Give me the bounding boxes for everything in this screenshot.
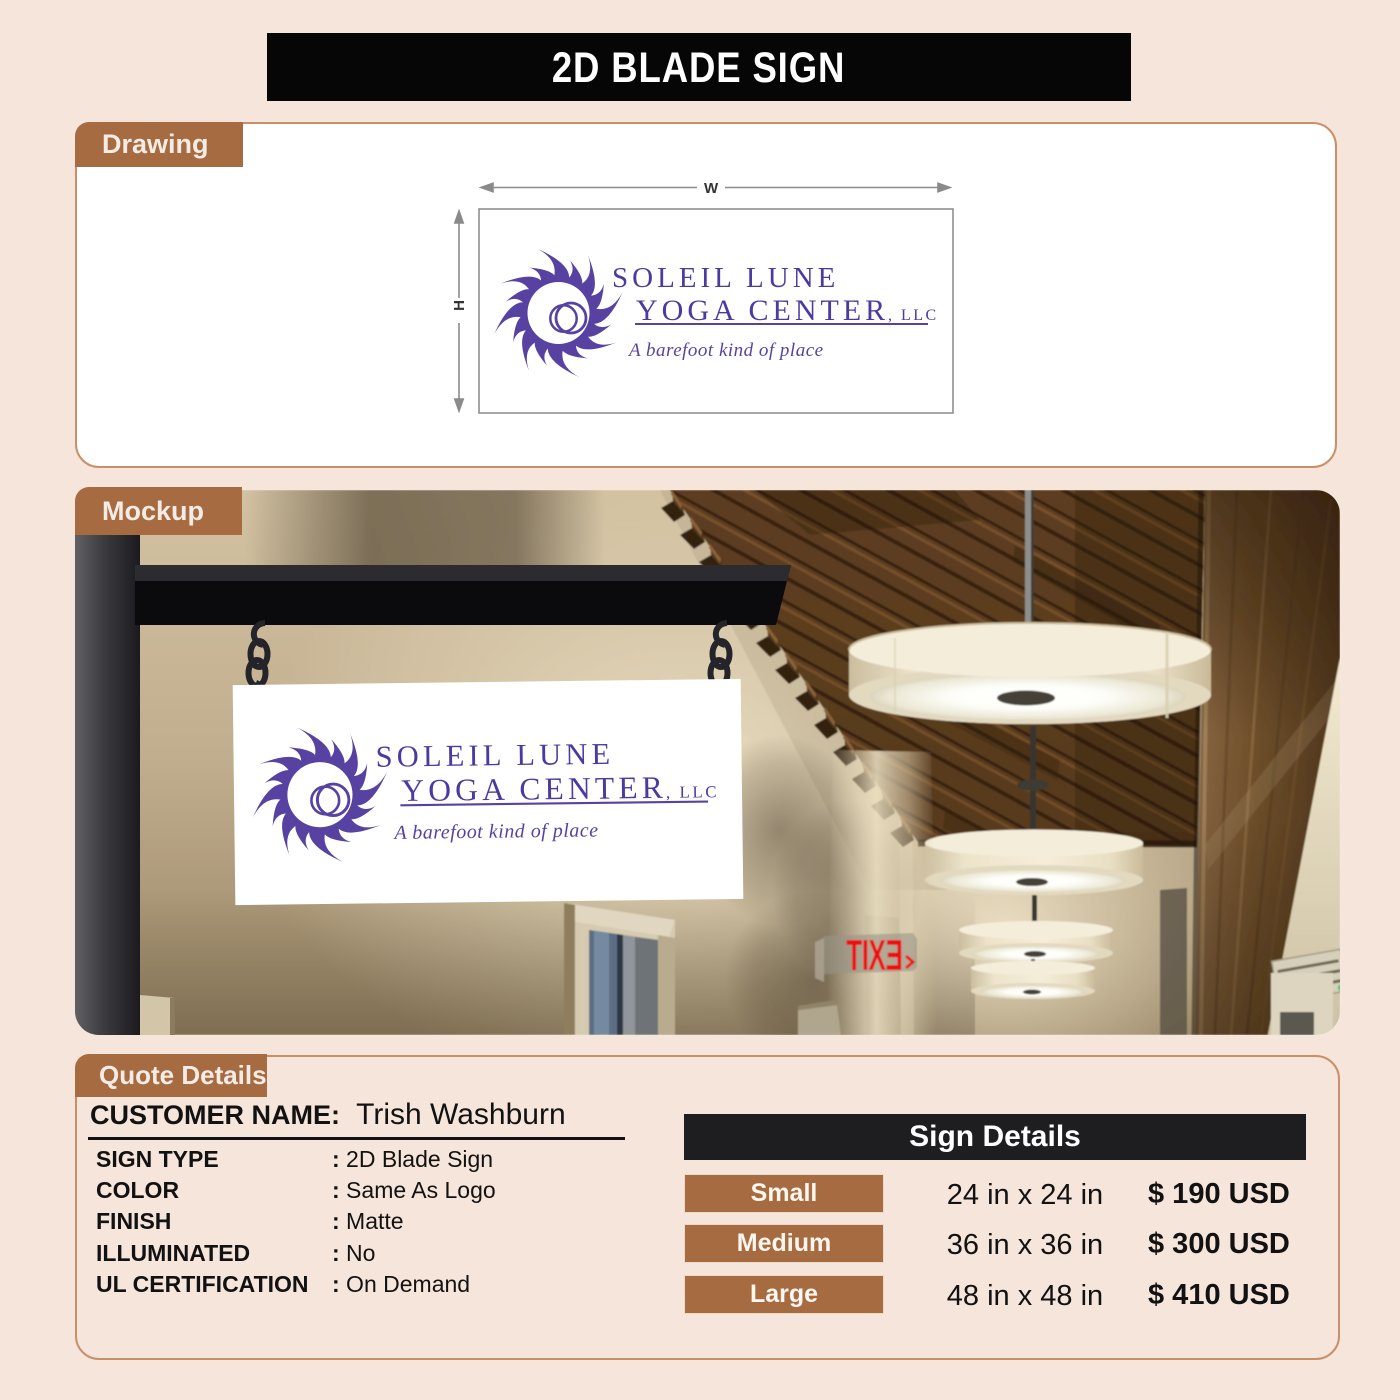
svg-text:EXIT: EXIT	[846, 930, 903, 980]
svg-text:H: H	[451, 299, 468, 311]
svg-text:W: W	[704, 180, 719, 197]
